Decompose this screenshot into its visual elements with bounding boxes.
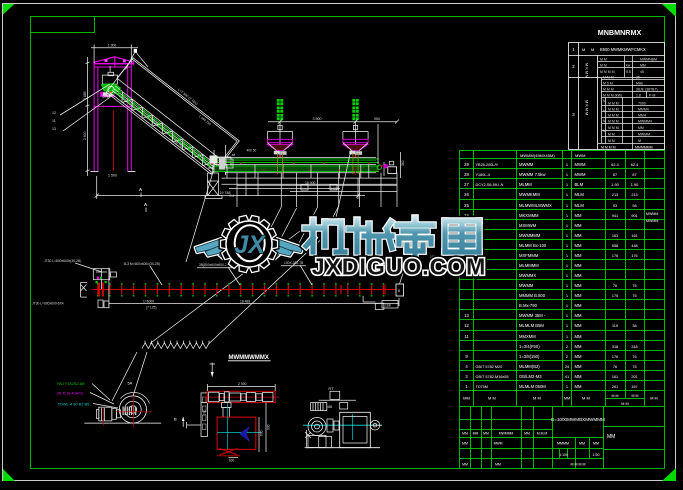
svg-text:658: 658 — [612, 244, 618, 248]
svg-text:1 500: 1 500 — [108, 174, 117, 178]
svg-text:175: 175 — [612, 294, 618, 298]
svg-text:176: 176 — [631, 254, 637, 258]
svg-text:M: M — [591, 47, 594, 52]
svg-text:13: 13 — [52, 127, 56, 131]
svg-text:MWMKMM: MWMKMM — [519, 192, 540, 197]
svg-text:1=6000: 1=6000 — [143, 299, 154, 303]
svg-text:M M: M M — [488, 396, 496, 401]
svg-text:M M: M M — [621, 402, 628, 406]
svg-text:MM: MM — [575, 354, 582, 359]
svg-text:360: 360 — [401, 160, 405, 166]
svg-text:MM: MM — [575, 223, 582, 228]
svg-text:MLMM Bx-100: MLMM Bx-100 — [519, 243, 547, 248]
svg-text:B: B — [174, 417, 177, 422]
svg-text:MM: MM — [483, 432, 489, 436]
svg-text:MWMM: MWMM — [646, 219, 658, 223]
svg-text:MWMM 7.5kw: MWMM 7.5kw — [519, 172, 546, 177]
svg-text:MLMLM 050M: MLMLM 050M — [519, 384, 546, 389]
svg-text:62.4: 62.4 — [631, 163, 638, 167]
svg-text:M M: M M — [533, 396, 541, 401]
svg-text:MM: MM — [575, 334, 582, 339]
svg-text:M M: M M — [650, 397, 657, 401]
svg-text:5A: 5A — [128, 382, 133, 386]
svg-text:B.Mx-790: B.Mx-790 — [519, 303, 538, 308]
svg-text:11: 11 — [52, 119, 56, 123]
svg-text:RT: RT — [328, 386, 334, 391]
svg-text:168: 168 — [385, 303, 391, 307]
svg-text:1 900: 1 900 — [108, 44, 117, 48]
svg-text:98: 98 — [632, 204, 636, 208]
svg-text:B=1000MWMBXMWMMM: B=1000MWMBXMWMMM — [551, 417, 605, 422]
svg-text:M 5 M: M 5 M — [603, 81, 613, 85]
svg-text:13: 13 — [464, 313, 469, 318]
svg-text:901: 901 — [631, 214, 637, 218]
svg-text:M M M (kW): M M M (kW) — [603, 93, 622, 97]
svg-text:JB TL6(-40A/9): JB TL6(-40A/9) — [57, 390, 84, 395]
svg-text:MWMMM: MWMMM — [499, 432, 514, 436]
svg-text:YB25-200L/9: YB25-200L/9 — [476, 163, 498, 167]
svg-text:163: 163 — [612, 234, 618, 238]
svg-text:18 488: 18 488 — [240, 299, 250, 303]
svg-text:M M: M M — [632, 394, 639, 398]
svg-text:MM: MM — [593, 441, 599, 445]
svg-text:MWM: MWM — [575, 153, 585, 158]
svg-text:29: 29 — [464, 162, 469, 167]
svg-text:2 600: 2 600 — [83, 131, 87, 140]
svg-text:MWMMMM: MWMMMM — [519, 233, 541, 238]
svg-text:3L3 M=600x600x(30-2B): 3L3 M=600x600x(30-2B) — [124, 262, 160, 266]
svg-text:M M M: M M M — [608, 119, 619, 123]
svg-text:MWMMWMMX: MWMMWMMX — [229, 355, 269, 361]
svg-text:M.M.M: M.M.M — [537, 432, 548, 436]
svg-text:MM: MM — [607, 434, 615, 440]
svg-text:M K M M: M K M M — [585, 63, 589, 78]
svg-text:MM: MM — [575, 233, 582, 238]
svg-text:MXMWM: MXMWM — [519, 223, 537, 228]
svg-text:5.5: 5.5 — [626, 70, 631, 74]
svg-text:M M: M M — [600, 57, 607, 61]
svg-text:GB/T 5782 M20: GB/T 5782 M20 — [476, 365, 503, 369]
svg-text:MM: MM — [575, 313, 582, 318]
svg-text:38JE (38TB7): 38JE (38TB7) — [636, 87, 658, 91]
svg-text:M M M: M M M — [608, 101, 619, 105]
svg-text:261: 261 — [612, 385, 618, 389]
svg-text:941: 941 — [612, 214, 618, 218]
svg-text:MLMMMM: MLMMMM — [519, 263, 539, 268]
svg-text:BLM: BLM — [575, 182, 584, 187]
svg-text:18 000: 18 000 — [305, 181, 315, 185]
svg-text:19 788: 19 788 — [220, 191, 231, 195]
svg-text:M M M: M M M — [603, 87, 614, 91]
svg-text:950: 950 — [374, 117, 380, 121]
svg-text:3 000: 3 000 — [330, 187, 339, 191]
svg-text:76: 76 — [632, 294, 636, 298]
svg-text:MM: MM — [640, 63, 646, 67]
svg-text:76: 76 — [613, 284, 617, 288]
svg-text:MM: MM — [575, 344, 582, 349]
svg-text:161: 161 — [631, 234, 637, 238]
svg-text:MWMM: MWMM — [646, 212, 658, 216]
svg-text:M M M: M M M — [608, 107, 619, 111]
svg-text:MM: MM — [463, 396, 470, 401]
svg-text:MLMWMLMWMX: MLMWMLMWMX — [519, 203, 552, 208]
svg-text:(7 125): (7 125) — [146, 306, 156, 310]
svg-text:11: 11 — [464, 334, 469, 339]
svg-text:176: 176 — [612, 355, 618, 359]
svg-text:3B(800x600x600-2B): 3B(800x600x600-2B) — [199, 263, 230, 267]
svg-text:M M M: M M M — [608, 126, 619, 130]
svg-text:MWMM: MWMM — [519, 283, 534, 288]
svg-text:27: 27 — [464, 182, 469, 187]
svg-text:41: 41 — [565, 374, 570, 379]
svg-text:76: 76 — [632, 365, 636, 369]
svg-text:12: 12 — [52, 111, 56, 115]
svg-text:MM: MM — [524, 432, 530, 436]
svg-text:JX: JX — [234, 231, 266, 259]
svg-text:318: 318 — [631, 345, 637, 349]
svg-text:M M M: M M M — [603, 75, 614, 79]
svg-text:MNBMNRMX: MNBMNRMX — [598, 28, 642, 37]
svg-text:MM: MM — [575, 384, 582, 389]
svg-text:MXFMMM: MXFMMM — [519, 253, 539, 258]
svg-text:MKXMMM: MKXMMM — [519, 213, 539, 218]
svg-text:1.90: 1.90 — [631, 183, 638, 187]
svg-text:M: M — [603, 99, 606, 103]
svg-text:MLM: MLM — [575, 203, 585, 208]
svg-text:MM: MM — [579, 441, 585, 445]
svg-text:kw: kw — [626, 63, 631, 67]
svg-text:MM: MM — [575, 293, 582, 298]
svg-text:MWM: MWM — [575, 172, 586, 177]
svg-text:76: 76 — [632, 284, 636, 288]
svg-text:88: 88 — [232, 153, 236, 157]
svg-text:MWMM: MWMM — [519, 162, 534, 167]
svg-text:MWMM4: MWMM4 — [638, 119, 652, 123]
svg-text:MM: MM — [575, 273, 582, 278]
svg-text:MM: MM — [575, 374, 582, 379]
svg-text:M M: M M — [608, 132, 615, 136]
svg-text:M M: M M — [600, 63, 607, 67]
svg-text:MM: MM — [462, 432, 468, 436]
svg-text:GB/T 5782-M16x55: GB/T 5782-M16x55 — [476, 375, 509, 379]
svg-text:38: 38 — [632, 324, 636, 328]
svg-text:MWMM 35M -: MWMM 35M - — [519, 313, 546, 318]
svg-text:MM4: MM4 — [638, 113, 646, 117]
svg-text:MMMM: MMMM — [557, 441, 569, 445]
svg-text:JT30 L=800x600x(30-2B): JT30 L=800x600x(30-2B) — [44, 259, 81, 263]
svg-text:M M: M M — [582, 396, 590, 401]
svg-text:MM: MM — [462, 442, 468, 446]
svg-text:76: 76 — [613, 365, 617, 369]
svg-text:YBJ Y132S2-6B: YBJ Y132S2-6B — [57, 381, 85, 386]
svg-text:TDWL-4 80 B2 B5: TDWL-4 80 B2 B5 — [58, 401, 90, 406]
svg-text:MM: MM — [575, 263, 582, 268]
svg-text:1.90: 1.90 — [611, 183, 618, 187]
svg-text:93: 93 — [613, 204, 617, 208]
svg-text:MWMMX: MWMMX — [519, 273, 536, 278]
svg-text:MWM: MWM — [494, 442, 503, 446]
svg-text:MM: MM — [575, 213, 582, 218]
svg-text:MLM: MLM — [575, 192, 585, 197]
svg-text:A: A — [144, 202, 147, 207]
svg-text:213: 213 — [612, 193, 618, 197]
svg-text:62.4: 62.4 — [611, 163, 618, 167]
svg-text:87: 87 — [613, 173, 617, 177]
svg-text:25: 25 — [464, 203, 469, 208]
svg-text:100X-38J-7B: 100X-38J-7B — [284, 261, 304, 265]
svg-text:MM: MM — [638, 126, 644, 130]
svg-text:M M M M: M M M M — [600, 70, 615, 74]
svg-text:M K M M: M K M M — [585, 100, 589, 115]
svg-text:87: 87 — [632, 173, 636, 177]
svg-text:MM: MM — [473, 432, 479, 436]
svg-text:M M: M M — [608, 139, 615, 143]
svg-text:448: 448 — [631, 244, 637, 248]
svg-text:P-M: P-M — [649, 93, 656, 97]
svg-text:MMMMMM: MMMMMM — [635, 145, 653, 149]
svg-text:M: M — [603, 109, 606, 113]
svg-text:161: 161 — [612, 375, 618, 379]
svg-text:TD75M: TD75M — [476, 385, 488, 389]
svg-text:GB/LM2-M3: GB/LM2-M3 — [519, 374, 542, 379]
svg-text:MWMM: MWMM — [638, 132, 650, 136]
svg-text:119: 119 — [612, 324, 618, 328]
svg-text:MMMM B.800: MMMM B.800 — [519, 293, 546, 298]
svg-text:MM: MM — [575, 364, 582, 369]
svg-text:201: 201 — [631, 375, 637, 379]
svg-text:12: 12 — [464, 323, 469, 328]
svg-text:M M M M: M M M M — [571, 463, 586, 467]
svg-text:M M M M: M M M M — [601, 145, 616, 149]
svg-text:MLMLM B5M: MLMLM B5M — [519, 323, 544, 328]
svg-text:MM: MM — [575, 303, 582, 308]
svg-text:76: 76 — [632, 355, 636, 359]
svg-text:2 000: 2 000 — [238, 382, 247, 386]
svg-text:JT30 L=600x600-6X4: JT30 L=600x600-6X4 — [32, 302, 64, 306]
svg-text:MLMM: MLMM — [519, 182, 532, 187]
svg-text:MWMM(45MX45M): MWMM(45MX45M) — [520, 153, 555, 158]
svg-text:900: 900 — [267, 424, 271, 430]
svg-text:25: 25 — [636, 75, 640, 79]
svg-text:1:100: 1:100 — [559, 453, 568, 457]
svg-text:600: 600 — [229, 459, 235, 463]
svg-text:176: 176 — [612, 254, 618, 258]
svg-text:MAb: MAb — [636, 81, 643, 85]
svg-text:M: M — [638, 139, 641, 143]
svg-text:MM: MM — [575, 253, 582, 258]
svg-text:26: 26 — [464, 192, 469, 197]
svg-text:400 50: 400 50 — [247, 149, 257, 153]
svg-text:MLMM(B2): MLMM(B2) — [519, 364, 540, 369]
svg-text:M: M — [603, 129, 606, 133]
svg-text:7000: 7000 — [638, 101, 646, 105]
svg-text:MM: MM — [495, 463, 501, 467]
svg-text:M: M — [582, 47, 585, 52]
svg-text:28: 28 — [464, 172, 469, 177]
svg-text:M M: M M — [612, 394, 619, 398]
svg-text:B500 MWMKMWFCMKX: B500 MWMKMWFCMKX — [600, 47, 646, 52]
svg-text:318: 318 — [612, 345, 618, 349]
svg-text:DCY2-S6-59-I-N: DCY2-S6-59-I-N — [476, 183, 504, 187]
svg-text:1=3/4(F50): 1=3/4(F50) — [519, 344, 540, 349]
svg-text:MWM: MWM — [575, 162, 586, 167]
svg-text:485: 485 — [327, 405, 333, 409]
svg-text:Y180L-4: Y180L-4 — [476, 173, 490, 177]
svg-text:M M M: M M M — [608, 113, 619, 117]
svg-text:45: 45 — [640, 70, 644, 74]
svg-text:M: M — [603, 119, 606, 123]
svg-text:24: 24 — [565, 364, 570, 369]
svg-text:A: A — [139, 187, 142, 192]
svg-text:MM: MM — [575, 283, 582, 288]
svg-text:750: 750 — [203, 409, 207, 415]
svg-text:JXDIGUO.COM: JXDIGUO.COM — [312, 254, 487, 280]
svg-text:600: 600 — [260, 430, 264, 436]
svg-text:1=3/8(150): 1=3/8(150) — [519, 354, 540, 359]
svg-text:167: 167 — [631, 385, 637, 389]
svg-text:3 500: 3 500 — [313, 117, 322, 121]
svg-text:MM: MM — [575, 323, 582, 328]
svg-text:1:50: 1:50 — [593, 453, 600, 457]
svg-text:MM: MM — [564, 397, 570, 401]
svg-text:MMXMM: MMXMM — [519, 334, 536, 339]
svg-text:MM: MM — [462, 463, 468, 467]
svg-text:213: 213 — [631, 193, 637, 197]
svg-text:MMM4: MMM4 — [638, 107, 649, 111]
svg-text:MWMNBM: MWMNBM — [640, 57, 657, 61]
svg-text:MM: MM — [575, 243, 582, 248]
svg-text:1.8: 1.8 — [636, 93, 641, 97]
